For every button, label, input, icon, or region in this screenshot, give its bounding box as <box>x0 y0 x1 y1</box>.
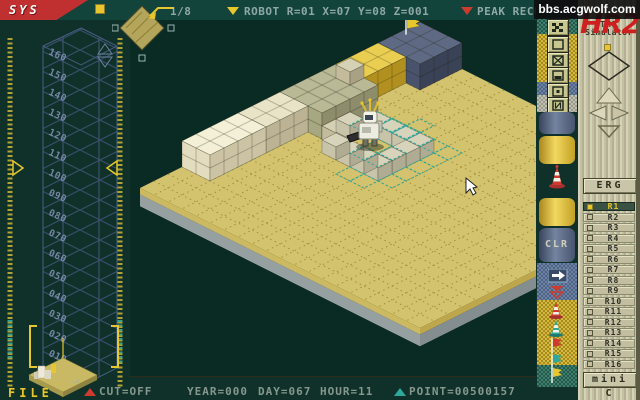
register-row-r3[interactable]: R3 <box>583 223 635 232</box>
register-row-r14[interactable]: R14 <box>583 339 635 348</box>
erg-button[interactable]: ERG <box>583 178 637 194</box>
grid-dither-icon <box>551 22 565 33</box>
register-label: R10 <box>593 298 634 305</box>
height-tower: 1601501401301201101000900800700600500400… <box>0 20 130 400</box>
sys-label: SYS <box>9 3 40 17</box>
mini-c-button[interactable]: mini C <box>583 372 637 388</box>
tool-lower-button[interactable] <box>547 67 569 84</box>
day-status: DAY=067 <box>258 385 311 398</box>
register-label: R15 <box>593 350 634 357</box>
register-row-r9[interactable]: R9 <box>583 286 635 295</box>
tool-dither-button[interactable] <box>547 19 569 36</box>
register-row-r2[interactable]: R2 <box>583 213 635 222</box>
panel-edge <box>636 0 640 400</box>
register-label: R9 <box>593 287 634 294</box>
square-n-icon <box>551 100 565 111</box>
tool-select-button[interactable] <box>547 36 569 53</box>
register-row-r6[interactable]: R6 <box>583 255 635 264</box>
square-dot-icon <box>551 86 565 97</box>
square-empty-icon <box>551 39 565 50</box>
dpad-down-icon[interactable] <box>599 126 619 137</box>
side-panel: THE Simulator ERG R1R2R3R4R5R6R7R8R9R10R… <box>578 0 640 400</box>
current-tile-indicator[interactable] <box>112 2 176 64</box>
arrow-right-button[interactable] <box>548 269 568 283</box>
hour-status: HOUR=11 <box>320 385 373 398</box>
tool-strip: CLR <box>536 0 578 400</box>
scene-canvas <box>130 20 536 376</box>
sys-button[interactable]: SYS <box>0 0 88 20</box>
register-row-r8[interactable]: R8 <box>583 276 635 285</box>
right-toolbar: CLR <box>536 0 640 400</box>
handle-right <box>168 25 174 31</box>
handle-bottom <box>139 55 145 61</box>
point-marker-icon <box>394 388 406 396</box>
register-row-r5[interactable]: R5 <box>583 244 635 253</box>
register-label: R3 <box>593 224 634 231</box>
clr-button[interactable]: CLR <box>539 228 575 262</box>
register-row-r12[interactable]: R12 <box>583 318 635 327</box>
register-label: R6 <box>593 256 634 263</box>
register-row-r4[interactable]: R4 <box>583 234 635 243</box>
tool-swatch-icon <box>95 4 105 14</box>
cylinder-button-yellow-2[interactable] <box>539 198 575 226</box>
year-status: YEAR=000 <box>187 385 248 398</box>
app-window: SYS 1/8 ROBOT R=01 X=07 Y=08 Z=001 PEAK … <box>0 0 640 400</box>
cylinder-button-yellow-1[interactable] <box>539 136 575 164</box>
cylinder-button-blue[interactable] <box>539 112 575 134</box>
flag-teal-icon[interactable] <box>548 354 564 369</box>
register-label: R13 <box>593 329 634 336</box>
square-bar-icon <box>551 70 565 81</box>
square-x-icon <box>551 55 565 66</box>
register-label: R1 <box>593 203 634 210</box>
traffic-cone-icon[interactable] <box>548 165 566 189</box>
height-gauge-panel: 1601501401301201101000900800700600500400… <box>0 20 130 400</box>
register-row-r7[interactable]: R7 <box>583 265 635 274</box>
register-label: R11 <box>593 308 634 315</box>
diamond-button[interactable] <box>586 50 632 82</box>
dpad-right-icon[interactable] <box>612 106 628 120</box>
register-label: R12 <box>593 319 634 326</box>
watermark: bbs.acgwolf.com <box>534 0 640 19</box>
register-label: R14 <box>593 340 634 347</box>
handle-left <box>112 25 118 31</box>
cut-status: CUT=OFF <box>99 385 152 398</box>
dpad-up-icon[interactable] <box>597 88 621 103</box>
register-row-r1[interactable]: R1 <box>583 202 635 211</box>
dpad-control[interactable] <box>587 86 631 138</box>
peak-marker-icon <box>461 7 473 15</box>
register-row-r11[interactable]: R11 <box>583 307 635 316</box>
cone-red-icon[interactable] <box>548 302 564 319</box>
dpad-left-icon[interactable] <box>590 106 606 120</box>
register-label: R2 <box>593 214 634 221</box>
register-row-r15[interactable]: R15 <box>583 349 635 358</box>
double-arrow-down-icon[interactable] <box>548 286 566 299</box>
robot-marker-icon <box>227 7 239 15</box>
robot-status: ROBOT R=01 X=07 Y=08 Z=001 <box>244 5 429 18</box>
register-label: R5 <box>593 245 634 252</box>
flag-yellow-icon[interactable] <box>548 368 564 383</box>
register-label: R16 <box>593 361 634 368</box>
register-row-r13[interactable]: R13 <box>583 328 635 337</box>
register-list: R1R2R3R4R5R6R7R8R9R10R11R12R13R14R15R16 <box>583 202 635 370</box>
register-label: R7 <box>593 266 634 273</box>
register-row-r16[interactable]: R16 <box>583 360 635 369</box>
point-status: POINT=00500157 <box>409 385 516 398</box>
register-row-r10[interactable]: R10 <box>583 297 635 306</box>
isometric-viewport[interactable] <box>130 20 536 377</box>
register-label: R4 <box>593 235 634 242</box>
cut-marker-icon <box>84 388 96 396</box>
cone-teal-icon[interactable] <box>548 320 564 337</box>
flag-red-icon[interactable] <box>548 338 564 353</box>
register-label: R8 <box>593 277 634 284</box>
